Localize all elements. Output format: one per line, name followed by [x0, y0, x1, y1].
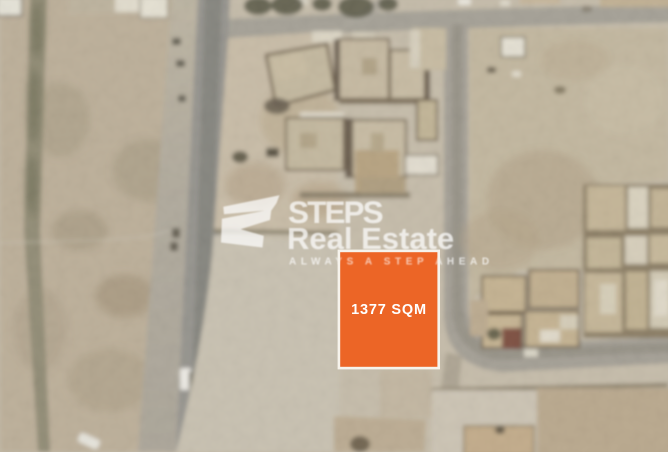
svg-text:1377 SQM: 1377 SQM: [351, 302, 427, 318]
